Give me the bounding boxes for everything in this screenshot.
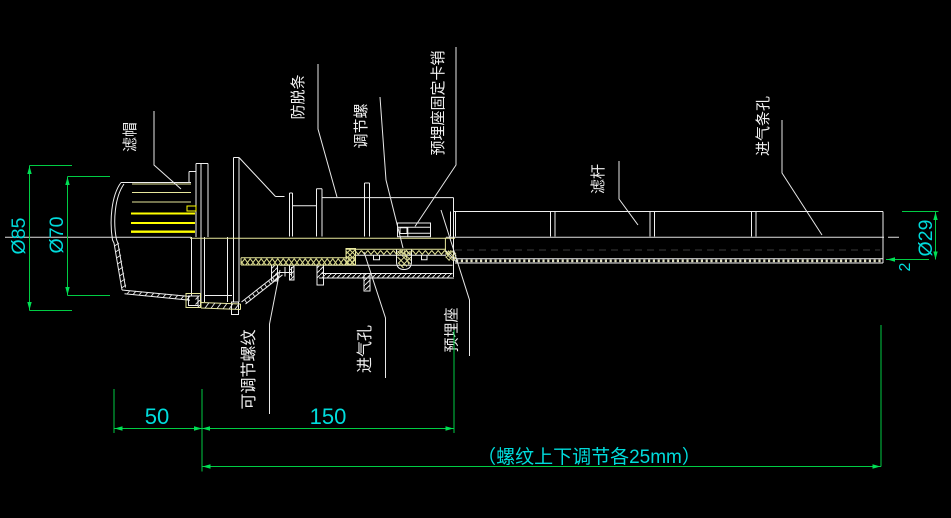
svg-text:可调节螺纹: 可调节螺纹	[240, 329, 258, 409]
svg-text:50: 50	[145, 404, 169, 429]
svg-text:2: 2	[897, 262, 914, 271]
svg-text:预埋座: 预埋座	[443, 307, 460, 352]
svg-text:预埋座固定卡销: 预埋座固定卡销	[430, 50, 447, 155]
svg-text:Ø29: Ø29	[915, 220, 937, 257]
svg-text:进气条孔: 进气条孔	[755, 96, 772, 156]
svg-text:调节螺: 调节螺	[353, 103, 370, 148]
svg-text:150: 150	[310, 404, 347, 429]
svg-text:Ø85: Ø85	[8, 217, 30, 254]
svg-text:（螺纹上下调节各25mm）: （螺纹上下调节各25mm）	[477, 446, 701, 468]
svg-text:进气孔: 进气孔	[356, 325, 374, 373]
svg-text:Ø70: Ø70	[46, 216, 68, 253]
svg-text:滤帽: 滤帽	[122, 122, 139, 152]
svg-text:防脱条: 防脱条	[290, 74, 307, 119]
svg-text:滤杆: 滤杆	[590, 164, 607, 194]
